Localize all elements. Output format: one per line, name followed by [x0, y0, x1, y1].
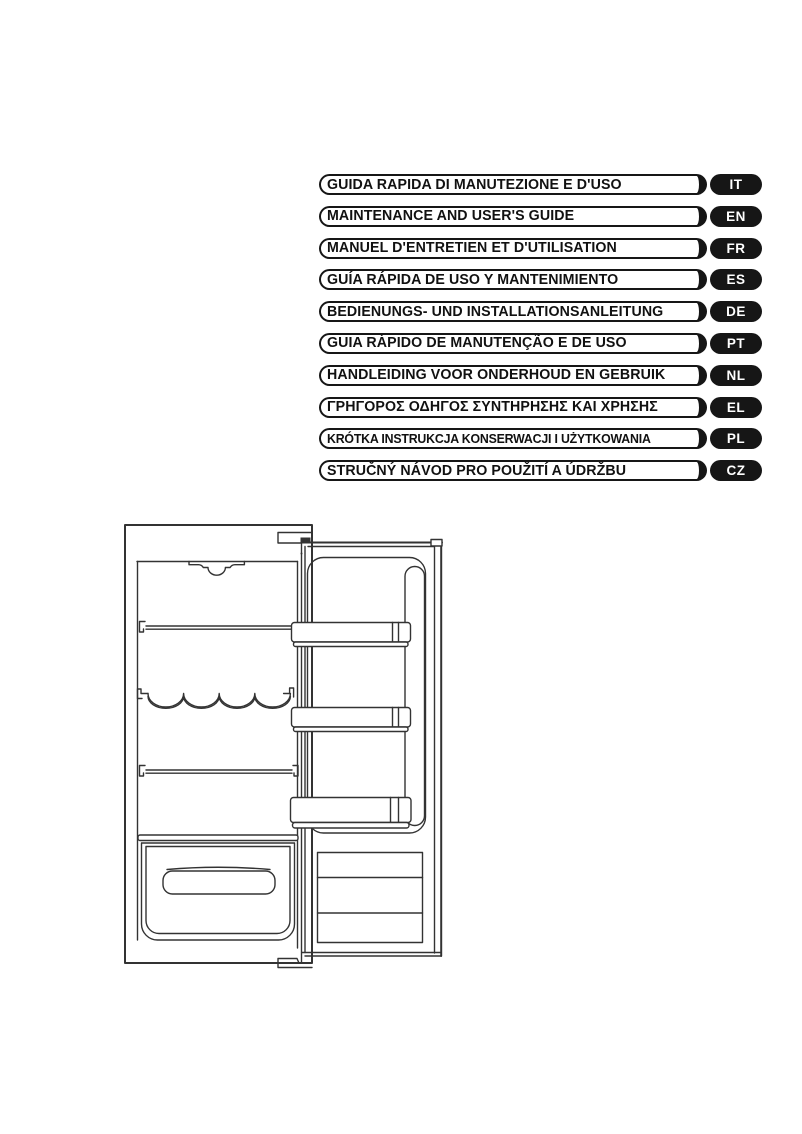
door-liner-side-wall [405, 567, 425, 826]
language-title: BEDIENUNGS- UND INSTALLATIONSANLEITUNG [327, 304, 663, 320]
language-code-badge: IT [710, 174, 762, 195]
door-bin-bottom [291, 798, 412, 829]
language-title-bar: MANUEL D'ENTRETIEN ET D'UTILISATION [319, 238, 707, 259]
shelf-lower [146, 770, 292, 773]
door-liner [308, 558, 426, 834]
refrigerator-figure [110, 500, 460, 980]
language-entry-pl: KRÓTKA INSTRUKCJA KONSERWACJI I UŻYTKOWA… [319, 428, 762, 449]
language-title: GUÍA RÁPIDA DE USO Y MANTENIMIENTO [327, 272, 618, 288]
interior-lamp-housing [189, 562, 244, 576]
language-title: GUIA RÁPIDO DE MANUTENÇÃO E DE USO [327, 335, 627, 351]
language-title: ΓΡΗΓΟΡΟΣ ΟΔΗΓΟΣ ΣΥΝΤΗΡΗΣΗΣ ΚΑΙ ΧΡΗΣΗΣ [327, 399, 658, 415]
language-title: GUIDA RAPIDA DI MANUTEZIONE E D'USO [327, 177, 622, 193]
language-index: GUIDA RAPIDA DI MANUTEZIONE E D'USO IT M… [319, 174, 762, 481]
language-title-bar: BEDIENUNGS- UND INSTALLATIONSANLEITUNG [319, 301, 707, 322]
wine-rack-right-hook [284, 688, 294, 697]
language-code-badge: ES [710, 269, 762, 290]
hinge-dot [301, 553, 303, 555]
language-entry-en: MAINTENANCE AND USER'S GUIDE EN [319, 206, 762, 227]
language-title: STRUČNÝ NÁVOD PRO POUŽITÍ A ÚDRŽBU [327, 463, 626, 479]
refrigerator-line-drawing-svg [110, 500, 460, 980]
language-code-badge: PT [710, 333, 762, 354]
manual-cover-page: GUIDA RAPIDA DI MANUTEZIONE E D'USO IT M… [0, 0, 802, 1134]
language-title: MANUEL D'ENTRETIEN ET D'UTILISATION [327, 240, 617, 256]
language-code-badge: FR [710, 238, 762, 259]
language-title-bar: GUÍA RÁPIDA DE USO Y MANTENIMIENTO [319, 269, 707, 290]
wine-rack-outer [148, 694, 290, 708]
shelf-lower-left-bracket [140, 766, 146, 777]
language-title-bar: GUIA RÁPIDO DE MANUTENÇÃO E DE USO [319, 333, 707, 354]
crisper-handle [163, 871, 275, 894]
language-title-bar: HANDLEIDING VOOR ONDERHOUD EN GEBRUIK [319, 365, 707, 386]
language-code-badge: EN [710, 206, 762, 227]
language-entry-pt: GUIA RÁPIDO DE MANUTENÇÃO E DE USO PT [319, 333, 762, 354]
language-title: HANDLEIDING VOOR ONDERHOUD EN GEBRUIK [327, 367, 665, 383]
language-title-bar: STRUČNÝ NÁVOD PRO POUŽITÍ A ÚDRŽBU [319, 460, 707, 481]
language-entry-fr: MANUEL D'ENTRETIEN ET D'UTILISATION FR [319, 238, 762, 259]
ventilation-grille [318, 853, 423, 943]
language-entry-nl: HANDLEIDING VOOR ONDERHOUD EN GEBRUIK NL [319, 365, 762, 386]
language-entry-de: BEDIENUNGS- UND INSTALLATIONSANLEITUNG D… [319, 301, 762, 322]
language-title-bar: KRÓTKA INSTRUKCJA KONSERWACJI I UŻYTKOWA… [319, 428, 707, 449]
language-title-bar: ΓΡΗΓΟΡΟΣ ΟΔΗΓΟΣ ΣΥΝΤΗΡΗΣΗΣ ΚΑΙ ΧΡΗΣΗΣ [319, 397, 707, 418]
language-entry-it: GUIDA RAPIDA DI MANUTEZIONE E D'USO IT [319, 174, 762, 195]
language-code-badge: NL [710, 365, 762, 386]
language-code-badge: PL [710, 428, 762, 449]
crisper-rim [138, 835, 298, 841]
language-entry-el: ΓΡΗΓΟΡΟΣ ΟΔΗΓΟΣ ΣΥΝΤΗΡΗΣΗΣ ΚΑΙ ΧΡΗΣΗΣ EL [319, 397, 762, 418]
door-bin-middle [292, 708, 411, 732]
door-top-cap [431, 540, 442, 547]
wine-rack-left-hook [138, 689, 149, 699]
door-bottom-edge [302, 953, 441, 957]
language-title: MAINTENANCE AND USER'S GUIDE [327, 208, 574, 224]
language-title-bar: GUIDA RAPIDA DI MANUTEZIONE E D'USO [319, 174, 707, 195]
language-title-bar: MAINTENANCE AND USER'S GUIDE [319, 206, 707, 227]
language-entry-cz: STRUČNÝ NÁVOD PRO POUŽITÍ A ÚDRŽBU CZ [319, 460, 762, 481]
shelf-upper [146, 626, 292, 629]
language-code-badge: EL [710, 397, 762, 418]
language-code-badge: DE [710, 301, 762, 322]
language-code-badge: CZ [710, 460, 762, 481]
door-bin-top [292, 623, 411, 647]
language-entry-es: GUÍA RÁPIDA DE USO Y MANTENIMIENTO ES [319, 269, 762, 290]
language-title: KRÓTKA INSTRUKCJA KONSERWACJI I UŻYTKOWA… [327, 432, 651, 446]
shelf-upper-bracket [140, 622, 146, 633]
